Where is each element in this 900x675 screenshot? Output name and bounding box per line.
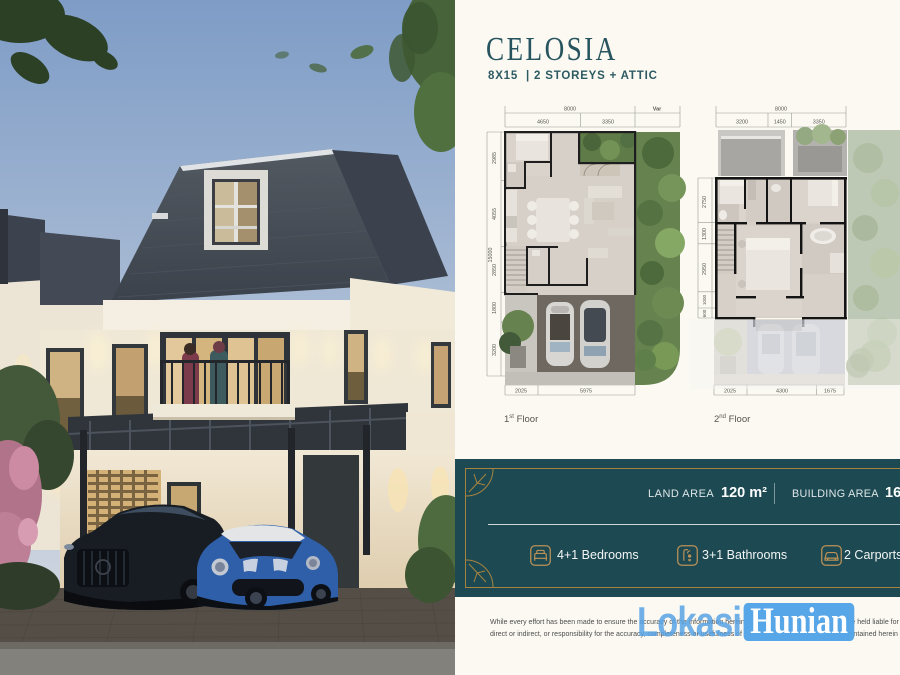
svg-text:3200: 3200 [736, 120, 748, 126]
svg-text:1800: 1800 [492, 302, 498, 314]
svg-text:5975: 5975 [580, 389, 592, 395]
svg-text:1450: 1450 [774, 120, 786, 126]
svg-text:8000: 8000 [775, 107, 787, 113]
svg-text:1300: 1300 [702, 228, 708, 240]
svg-text:3350: 3350 [602, 120, 614, 126]
svg-text:2850: 2850 [492, 264, 498, 276]
svg-text:2750: 2750 [702, 196, 708, 208]
svg-text:Var: Var [653, 107, 662, 113]
svg-text:4300: 4300 [776, 389, 788, 395]
svg-text:4055: 4055 [492, 208, 498, 220]
svg-text:4650: 4650 [537, 120, 549, 126]
svg-text:1675: 1675 [824, 389, 836, 395]
svg-text:8000: 8000 [564, 107, 576, 113]
svg-text:2950: 2950 [702, 263, 708, 275]
svg-text:2985: 2985 [492, 152, 498, 164]
svg-text:2025: 2025 [515, 389, 527, 395]
svg-text:15000: 15000 [488, 248, 494, 263]
svg-text:1000: 1000 [702, 294, 707, 305]
svg-text:2025: 2025 [724, 389, 736, 395]
svg-text:3200: 3200 [492, 344, 498, 356]
svg-text:600: 600 [702, 309, 707, 317]
